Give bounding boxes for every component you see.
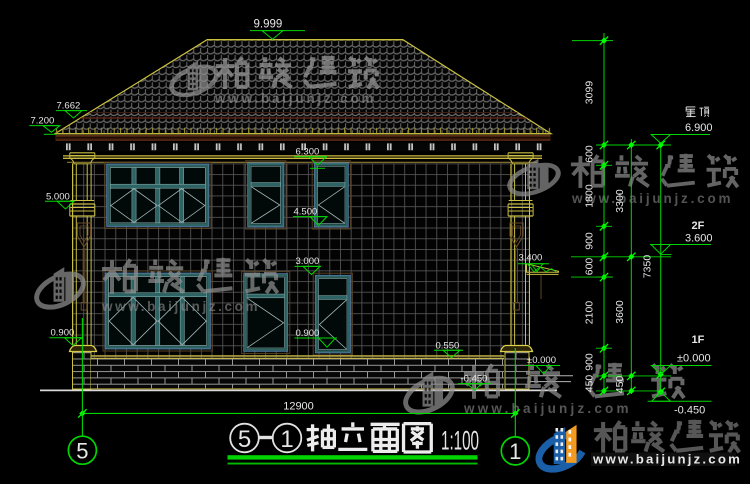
svg-text:5: 5 (76, 438, 88, 463)
svg-text:www.baijunjz.com: www.baijunjz.com (592, 452, 742, 467)
svg-text:www.baijunjz.com: www.baijunjz.com (101, 299, 260, 314)
svg-text:±0.000: ±0.000 (677, 353, 711, 365)
svg-text:3099: 3099 (584, 81, 596, 105)
svg-text:0.550: 0.550 (436, 340, 460, 351)
svg-text:-0.450: -0.450 (674, 405, 705, 417)
svg-text:0.900: 0.900 (51, 327, 75, 338)
svg-text:5.000: 5.000 (46, 191, 70, 202)
svg-text:5: 5 (238, 426, 251, 453)
svg-text:2100: 2100 (584, 301, 596, 325)
svg-text:-0.450: -0.450 (461, 373, 488, 384)
svg-text:9.999: 9.999 (254, 19, 283, 31)
svg-text:1800: 1800 (584, 184, 596, 208)
svg-text:6.300: 6.300 (296, 147, 320, 158)
svg-text:3.400: 3.400 (519, 252, 543, 263)
svg-text:450: 450 (584, 375, 596, 393)
svg-text:900: 900 (584, 232, 596, 250)
svg-text:7350: 7350 (642, 255, 654, 279)
svg-text:7.662: 7.662 (57, 100, 81, 111)
svg-text:600: 600 (584, 258, 596, 276)
svg-text:3300: 3300 (614, 189, 626, 213)
svg-text:600: 600 (584, 145, 596, 163)
svg-text:1: 1 (509, 439, 521, 464)
svg-text:450: 450 (614, 376, 626, 394)
svg-text:3600: 3600 (614, 300, 626, 324)
svg-text:±0.000: ±0.000 (527, 355, 556, 366)
svg-text:0.900: 0.900 (296, 328, 320, 339)
svg-text:1:100: 1:100 (441, 426, 479, 456)
svg-text:1: 1 (280, 426, 293, 453)
svg-text:www.baijunjz.com: www.baijunjz.com (214, 91, 376, 106)
svg-text:4.500: 4.500 (294, 206, 318, 217)
svg-text:3.000: 3.000 (296, 256, 320, 267)
svg-text:12900: 12900 (283, 401, 314, 413)
svg-text:7.200: 7.200 (31, 116, 55, 127)
svg-text:900: 900 (584, 353, 596, 371)
svg-text:6.900: 6.900 (685, 122, 713, 134)
svg-text:2F: 2F (692, 220, 705, 232)
svg-text:1F: 1F (692, 334, 705, 346)
svg-text:3.600: 3.600 (685, 233, 713, 245)
